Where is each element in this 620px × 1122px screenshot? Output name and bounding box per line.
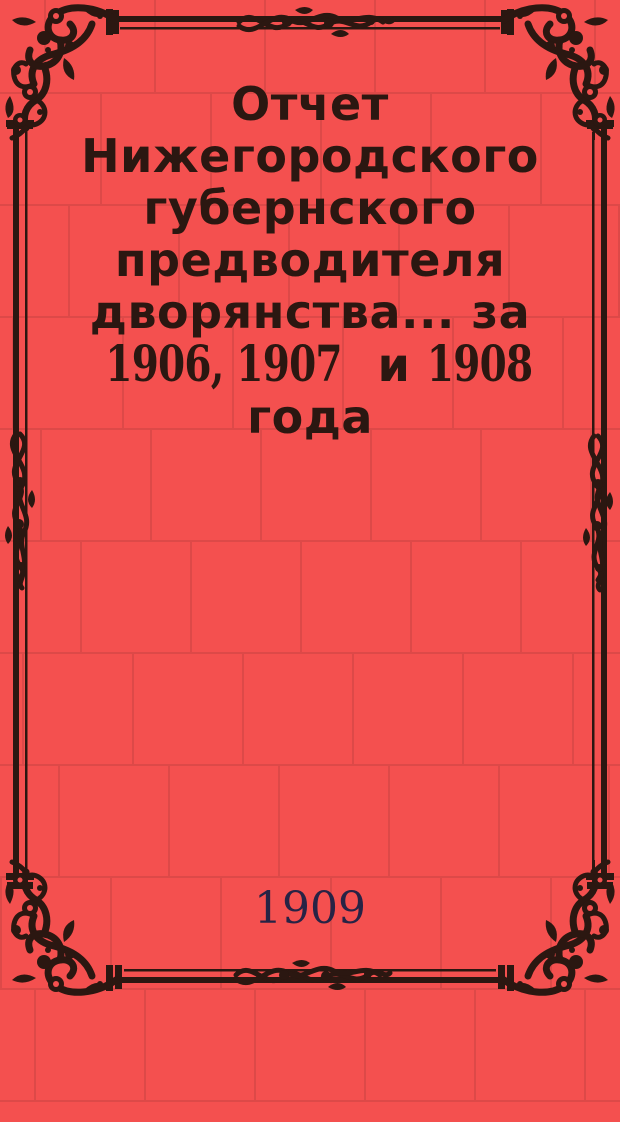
title-line: Отчет: [24, 78, 596, 130]
title-years-group: 1908: [427, 338, 532, 390]
title-line: Нижегородского: [24, 130, 596, 182]
title-line: года: [24, 391, 596, 443]
book-cover: { "colors": { "background": "#f4504f", "…: [0, 0, 620, 1000]
title-line: дворянства... за: [24, 286, 596, 338]
title-years-group: 1906, 1907: [106, 338, 342, 390]
book-title: Отчет Нижегородского губернского предвод…: [24, 78, 596, 443]
title-line: губернского: [24, 182, 596, 234]
publication-year: 1909: [0, 886, 620, 932]
title-line: предводителя: [24, 234, 596, 286]
title-years-conjunction: и: [378, 338, 411, 392]
title-line-years: 1906, 1907и1908: [24, 338, 596, 391]
